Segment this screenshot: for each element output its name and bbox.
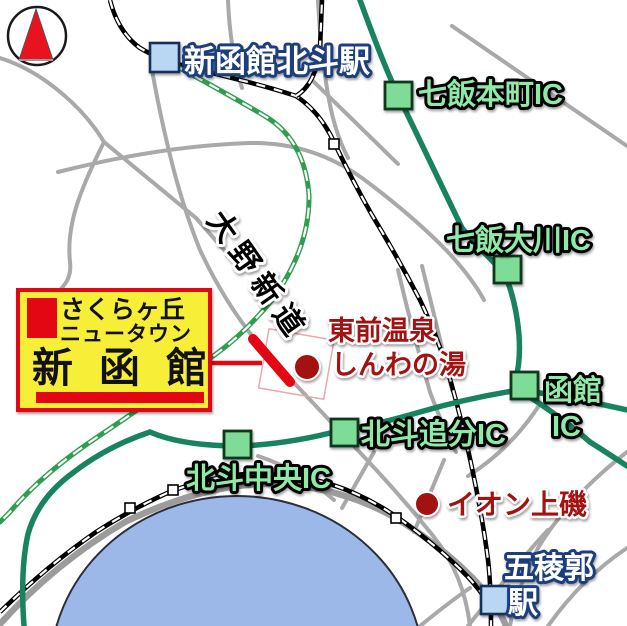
rail-station-marker bbox=[329, 139, 339, 149]
label-hokuto-chuo-ic: 北斗中央IC bbox=[186, 462, 331, 495]
ic-marker-nanae-honcho bbox=[385, 82, 412, 109]
rail-station-marker bbox=[168, 485, 178, 495]
callout-title: 新函館 bbox=[32, 345, 233, 391]
bay-water bbox=[50, 496, 424, 626]
label-hakodate-ic-line1: 函館 bbox=[544, 373, 602, 407]
label-nanae-honcho-ic: 七飯本町IC bbox=[418, 77, 563, 111]
callout-box: さくらヶ丘 ニュータウン 新函館 bbox=[18, 290, 233, 410]
label-onsen-line1: 東前温泉 bbox=[328, 315, 437, 346]
callout-underline bbox=[36, 392, 204, 403]
ic-marker-nanae-okawa bbox=[494, 256, 521, 283]
poi-dot-onsen bbox=[294, 354, 320, 380]
label-hokuto-oiwake-ic: 北斗追分IC bbox=[361, 417, 506, 451]
label-nanae-okawa-ic: 七飯大川IC bbox=[446, 223, 591, 257]
access-map: 新函館北斗駅 五稜郭 駅 七飯本町IC 七飯大川IC 函館 IC 北斗追分IC … bbox=[0, 0, 627, 626]
label-onsen-line2: しんわの湯 bbox=[331, 350, 466, 380]
callout-red-square bbox=[27, 298, 57, 338]
road bbox=[420, 588, 470, 626]
label-goryokaku-line1: 五稜郭 bbox=[504, 552, 594, 585]
label-shin-hakodate-hokuto-station: 新函館北斗駅 bbox=[184, 44, 370, 79]
rail-station-marker bbox=[391, 513, 401, 523]
rail-station-marker bbox=[125, 503, 135, 513]
road bbox=[0, 58, 104, 142]
north-compass-icon bbox=[8, 7, 66, 65]
label-goryokaku-line2: 駅 bbox=[508, 587, 538, 620]
label-hakodate-ic-line2: IC bbox=[552, 411, 581, 443]
route-highlight-marker bbox=[253, 339, 290, 382]
ic-marker-hokuto-chuo bbox=[224, 431, 251, 458]
ic-marker-hokuto-oiwake bbox=[331, 419, 358, 446]
callout-line1: さくらヶ丘 bbox=[60, 296, 185, 324]
station-marker-shin-hakodate-hokuto bbox=[150, 43, 179, 72]
label-aeon-kamiiso: イオン上磯 bbox=[447, 488, 587, 520]
ic-marker-hakodate bbox=[511, 372, 538, 399]
callout-line2: ニュータウン bbox=[60, 323, 192, 346]
station-marker-goryokaku bbox=[481, 586, 509, 614]
label-ono-shindo-road: 大野新道 bbox=[200, 205, 314, 348]
poi-dot-aeon bbox=[415, 492, 439, 516]
